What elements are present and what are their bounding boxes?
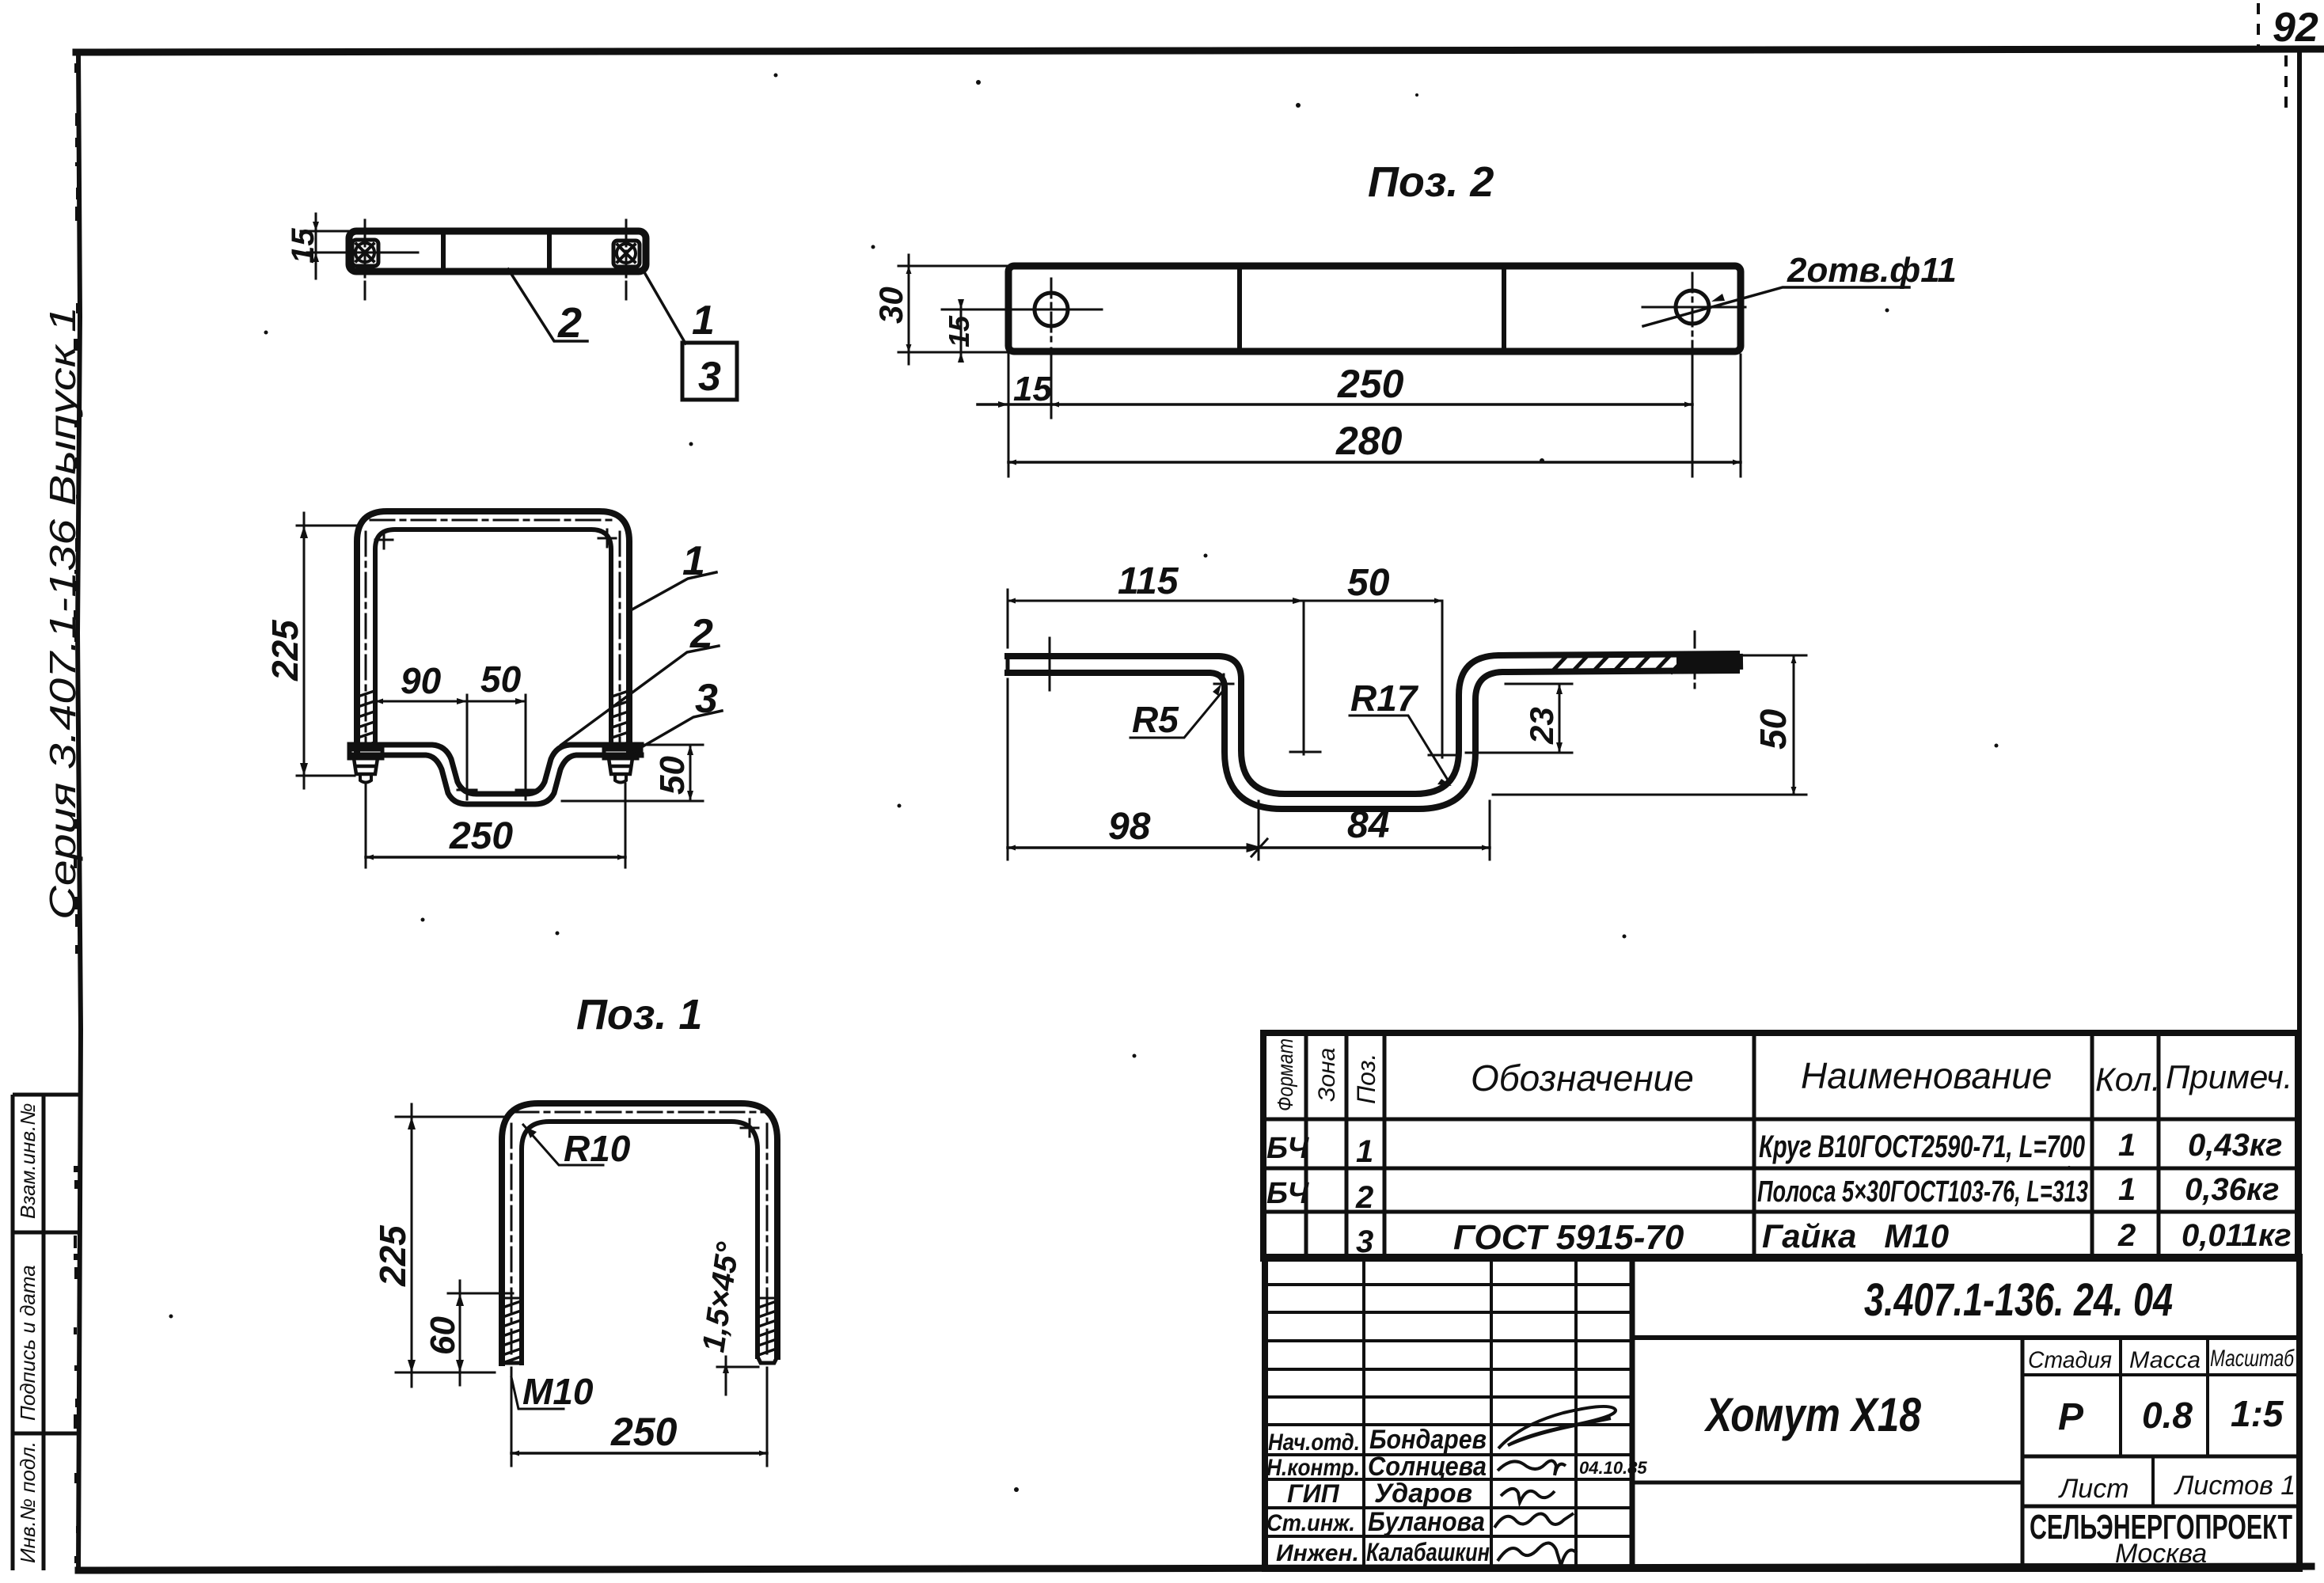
svg-text:2: 2 [557,299,582,347]
svg-text:1: 1 [1356,1134,1373,1169]
svg-text:Формат: Формат [1273,1038,1297,1111]
svg-text:Кол.: Кол. [2095,1061,2161,1098]
svg-text:Лист: Лист [2058,1474,2129,1504]
svg-text:2отв.ф11: 2отв.ф11 [1787,251,1957,290]
svg-text:Поз. 2: Поз. 2 [1368,158,1494,206]
svg-text:280: 280 [1335,419,1403,463]
svg-text:250: 250 [1337,362,1404,406]
svg-text:Стадия: Стадия [2028,1347,2112,1373]
svg-text:ГОСТ 5915-70: ГОСТ 5915-70 [1453,1218,1684,1257]
svg-text:Примеч.: Примеч. [2166,1058,2292,1095]
svg-text:Калабашкин: Калабашкин [1366,1538,1490,1566]
svg-text:0.8: 0.8 [2142,1395,2193,1436]
svg-text:50: 50 [1347,562,1390,604]
svg-text:225: 225 [372,1224,413,1287]
svg-text:0,011кг: 0,011кг [2182,1218,2292,1253]
svg-text:1: 1 [692,298,715,344]
svg-text:1: 1 [2118,1172,2136,1207]
svg-text:Листов 1: Листов 1 [2174,1471,2296,1501]
svg-text:М10: М10 [522,1371,594,1412]
svg-text:0,36кг: 0,36кг [2185,1172,2279,1207]
svg-text:225: 225 [264,619,306,681]
svg-text:Обозначение: Обозначение [1471,1057,1694,1099]
svg-text:Масса: Масса [2129,1347,2201,1373]
svg-text:БЧ: БЧ [1266,1132,1309,1165]
svg-text:Солнцева: Солнцева [1368,1452,1487,1482]
svg-text:15: 15 [286,228,321,264]
svg-text:98: 98 [1108,806,1151,848]
svg-text:15: 15 [943,315,975,347]
svg-text:90: 90 [401,660,442,701]
svg-text:Н.контр.: Н.контр. [1266,1455,1360,1481]
svg-text:3: 3 [695,676,718,722]
svg-text:Нач.отд.: Нач.отд. [1268,1429,1360,1456]
svg-text:50: 50 [653,756,692,795]
svg-text:23: 23 [1523,707,1560,745]
svg-text:Полоса 5×30ГОСТ103-76, L=313: Полоса 5×30ГОСТ103-76, L=313 [1757,1175,2088,1209]
svg-text:92: 92 [2273,5,2318,51]
svg-text:250: 250 [610,1410,678,1454]
svg-text:Хомут Х18: Хомут Х18 [1704,1388,1922,1441]
svg-text:Масштаб: Масштаб [2210,1346,2295,1372]
svg-text:Серия 3.407.1-136 Выпуск 1: Серия 3.407.1-136 Выпуск 1 [42,306,83,920]
svg-text:30: 30 [872,287,909,324]
svg-text:Ст.инж.: Ст.инж. [1266,1510,1355,1536]
svg-text:04.10.85: 04.10.85 [1579,1458,1647,1478]
svg-text:0,43кг: 0,43кг [2188,1128,2282,1163]
svg-text:Поз.: Поз. [1352,1053,1380,1104]
svg-text:R10: R10 [564,1128,631,1169]
svg-text:1:5: 1:5 [2231,1393,2284,1434]
svg-text:60: 60 [423,1316,462,1355]
svg-text:Бондарев: Бондарев [1369,1425,1487,1455]
svg-text:Р: Р [2058,1396,2084,1438]
svg-text:Зона: Зона [1314,1048,1340,1102]
svg-text:Наименование: Наименование [1801,1055,2052,1096]
svg-text:250: 250 [449,815,513,857]
svg-text:Инв.№ подл.: Инв.№ подл. [16,1441,40,1563]
svg-text:2: 2 [689,611,713,657]
svg-text:15: 15 [1013,370,1052,408]
svg-text:2: 2 [2117,1218,2136,1253]
svg-text:R5: R5 [1132,699,1179,740]
svg-text:Буланова: Буланова [1368,1507,1485,1537]
svg-text:БЧ: БЧ [1266,1177,1309,1210]
svg-text:Поз. 1: Поз. 1 [576,991,702,1038]
svg-text:Гайка М10: Гайка М10 [1762,1217,1949,1255]
svg-text:115: 115 [1118,560,1179,602]
svg-text:Подпись и дата: Подпись и дата [16,1265,40,1421]
svg-text:Москва: Москва [2115,1539,2207,1569]
svg-text:ГИП: ГИП [1287,1479,1340,1508]
svg-text:Ударов: Ударов [1374,1479,1472,1509]
svg-text:1: 1 [682,538,705,584]
svg-text:3: 3 [698,354,721,400]
svg-text:Инжен.: Инжен. [1276,1540,1359,1566]
svg-text:3.407.1-136. 24. 04: 3.407.1-136. 24. 04 [1864,1274,2173,1326]
svg-text:Взам.инв.№: Взам.инв.№ [16,1103,40,1219]
svg-text:50: 50 [480,659,522,700]
svg-text:2: 2 [1355,1180,1373,1215]
svg-text:1: 1 [2118,1128,2136,1163]
svg-text:84: 84 [1347,804,1389,846]
svg-text:R17: R17 [1350,678,1419,719]
svg-text:50: 50 [1752,708,1794,750]
svg-text:Круг В10ГОСТ2590-71, L=700: Круг В10ГОСТ2590-71, L=700 [1759,1129,2085,1164]
